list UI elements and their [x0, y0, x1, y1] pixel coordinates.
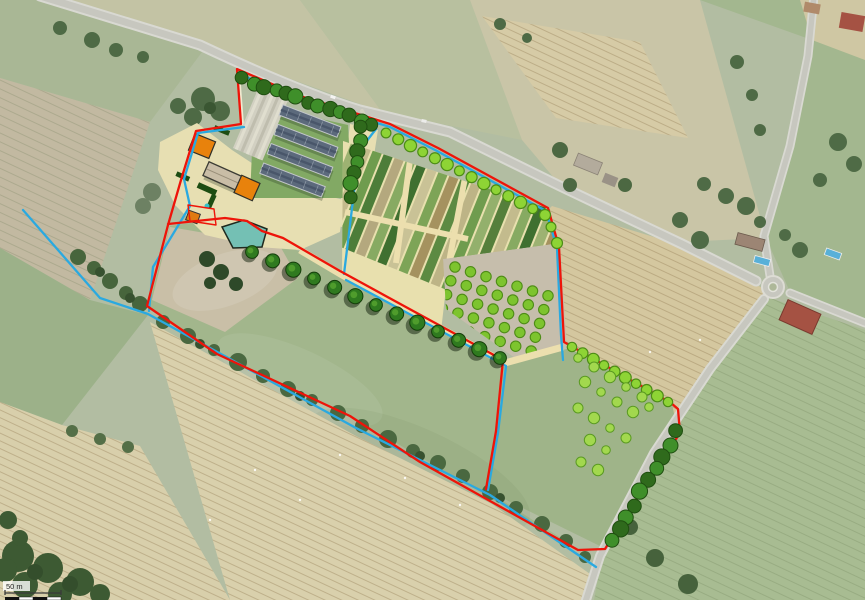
aerial-map-canvas: 50 m: [0, 0, 865, 600]
scale-label: 50 m: [6, 582, 23, 591]
site-plan-map: 50 m: [0, 0, 865, 600]
roundabout: [762, 276, 784, 298]
